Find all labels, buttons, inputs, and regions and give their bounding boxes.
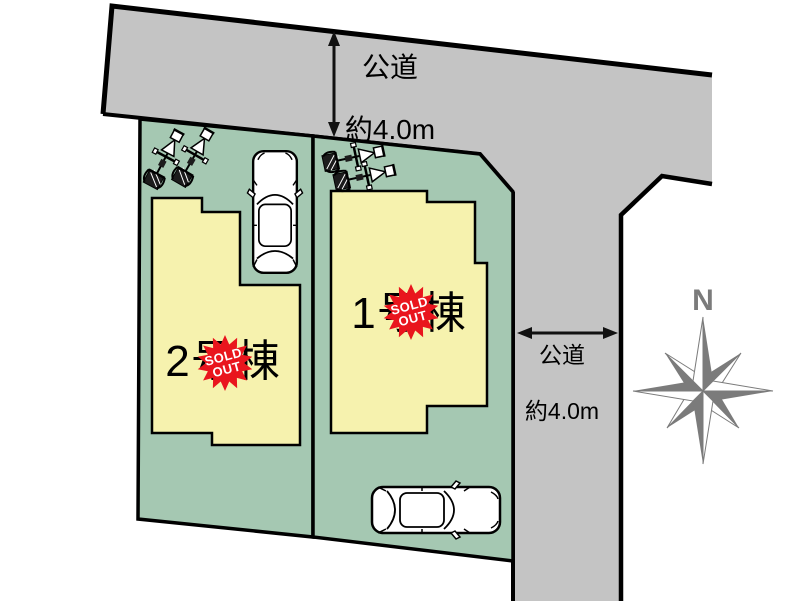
car-icon-parcel2 [247, 151, 302, 273]
top-road-name: 公道 [362, 52, 418, 83]
car-icon-parcel1 [372, 481, 500, 539]
side-road-label: 公道 約4.0m [502, 341, 622, 425]
compass-north-label: N [683, 284, 723, 318]
side-road-name: 公道 [539, 342, 585, 368]
top-road-label: 公道 約4.0m [320, 52, 460, 145]
top-road-width: 約4.0m [345, 114, 435, 145]
site-plan: 公道 約4.0m 公道 約4.0m 2号棟 1号棟 SOLD OUT SOLD … [0, 0, 800, 601]
compass-rose-icon [633, 317, 773, 464]
sold-out-badge-text: SOLD OUT [389, 295, 433, 330]
sold-out-badge-text: SOLD OUT [203, 346, 247, 381]
side-road-width: 約4.0m [525, 398, 599, 424]
